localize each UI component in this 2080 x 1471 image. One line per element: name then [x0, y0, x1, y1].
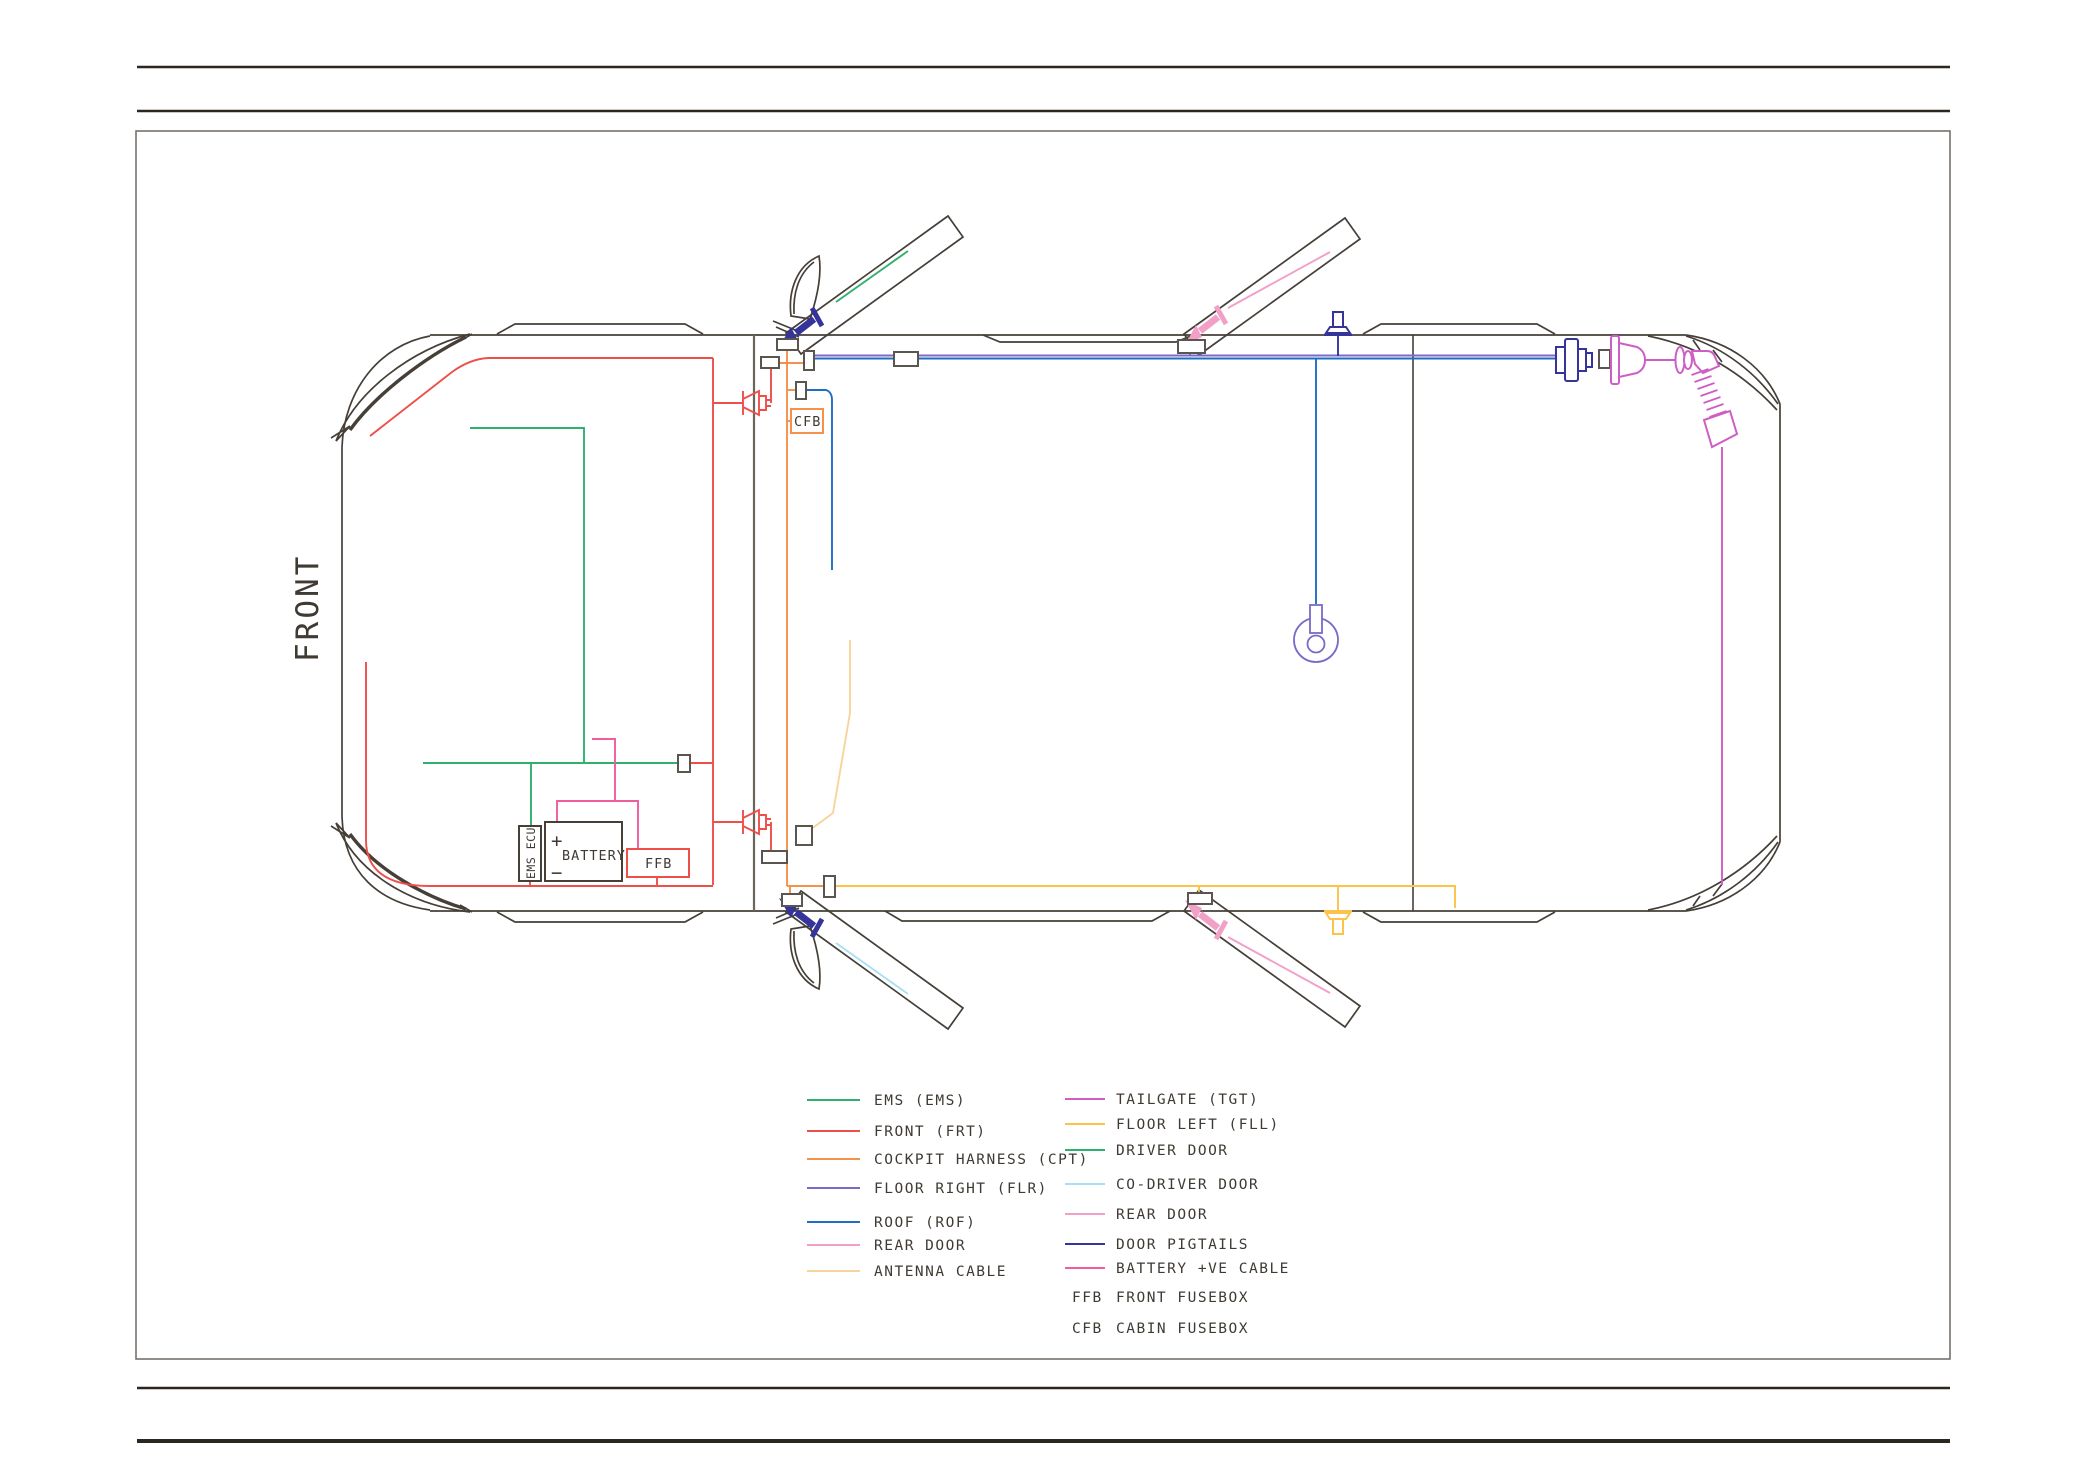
- legend-abbr-label: CABIN FUSEBOX: [1116, 1321, 1249, 1337]
- drawing-sheet: FRONT: [0, 0, 2080, 1471]
- front-left-wheel-arch: [497, 912, 703, 922]
- driver-door-panel: [786, 216, 963, 354]
- legend-label: FLOOR RIGHT (FLR): [874, 1181, 1048, 1197]
- dome-lamp-bulb: [1310, 605, 1322, 633]
- floor-sensor-mast: [1333, 919, 1343, 934]
- floor-left-harness: [835, 886, 1455, 912]
- sliding-door-rail-top: [983, 335, 1193, 342]
- battery-label: BATTERY: [562, 848, 626, 864]
- driver-door-harness-wire: [836, 251, 908, 302]
- legend-label: ROOF (ROF): [874, 1215, 976, 1231]
- legend-right-column: TAILGATE (TGT) FLOOR LEFT (FLL) DRIVER D…: [1065, 1092, 1290, 1277]
- door-pigtails: [779, 306, 1226, 939]
- battery-plus-sign: +: [551, 830, 562, 852]
- legend-left-column: EMS (EMS) FRONT (FRT) COCKPIT HARNESS (C…: [807, 1093, 1089, 1280]
- legend-label: FRONT (FRT): [874, 1124, 987, 1140]
- wheel-arches: [497, 324, 1555, 922]
- ffb-label: FFB: [645, 856, 672, 872]
- codriver-door-harness-wire: [836, 943, 908, 994]
- legend-abbr: FFB: [1072, 1290, 1103, 1306]
- connector: [761, 357, 779, 368]
- tailgate-boot-tip: [1704, 411, 1737, 447]
- antenna-base: [1326, 327, 1350, 333]
- rear-door-top-harness-wire: [1228, 252, 1330, 308]
- sliding-door-rail-bottom: [885, 911, 1170, 921]
- front-right-wheel-arch: [497, 324, 703, 334]
- connector: [1599, 350, 1610, 368]
- connector: [796, 826, 812, 845]
- legend-label: BATTERY +VE CABLE: [1116, 1261, 1290, 1277]
- tailgate-connector-cone: [1619, 343, 1645, 377]
- floor-sensor-mount: [1324, 911, 1352, 934]
- firewall-grommet-lower: [743, 810, 771, 834]
- dome-lamp: [1294, 605, 1338, 662]
- ems-ecu-box: EMS ECU: [519, 826, 541, 881]
- legend-abbreviations: FFB FRONT FUSEBOX CFB CABIN FUSEBOX: [1072, 1290, 1249, 1337]
- connector: [796, 382, 806, 399]
- ffb-box: FFB: [627, 849, 689, 877]
- antenna-mast: [1333, 312, 1343, 327]
- connector: [762, 851, 787, 863]
- cfb-label: CFB: [794, 414, 821, 430]
- tailgate-connector-plate: [1611, 336, 1619, 384]
- tailgate-corrugated-boot: [1692, 369, 1727, 417]
- legend-label: DRIVER DOOR: [1116, 1143, 1229, 1159]
- roof-harness: [806, 359, 1556, 605]
- tailgate-round-connector-inner: [1684, 351, 1692, 369]
- connector: [824, 876, 835, 897]
- legend: EMS (EMS) FRONT (FRT) COCKPIT HARNESS (C…: [807, 1092, 1290, 1337]
- rear-right-wheel-arch: [1363, 324, 1555, 334]
- roof-rear-connector: [1556, 347, 1565, 373]
- legend-label: FLOOR LEFT (FLL): [1116, 1117, 1280, 1133]
- battery-minus-sign: −: [551, 862, 562, 884]
- drawing-frame: [136, 131, 1950, 1359]
- legend-label: REAR DOOR: [1116, 1207, 1208, 1223]
- legend-label: COCKPIT HARNESS (CPT): [874, 1152, 1089, 1168]
- roof-rear-connector-nub: [1586, 353, 1592, 367]
- connector: [804, 351, 814, 370]
- legend-label: CO-DRIVER DOOR: [1116, 1177, 1259, 1193]
- tail-lamp-bottom: [1648, 836, 1780, 911]
- legend-label: DOOR PIGTAILS: [1116, 1237, 1249, 1253]
- front-harness: [366, 358, 771, 886]
- connector: [1188, 893, 1212, 904]
- connector: [1178, 340, 1205, 353]
- connector: [782, 894, 802, 906]
- sheet-border: [136, 67, 1950, 1441]
- antenna-cable: [806, 640, 850, 833]
- legend-label: ANTENNA CABLE: [874, 1264, 1007, 1280]
- battery-box: + − BATTERY: [545, 822, 626, 884]
- roof-antenna-mount: [1324, 312, 1352, 356]
- cfb-box: CFB: [791, 409, 823, 433]
- driver-door-open: [773, 216, 963, 354]
- legend-abbr-label: FRONT FUSEBOX: [1116, 1290, 1249, 1306]
- firewall-grommet-upper: [743, 391, 771, 415]
- legend-abbr: CFB: [1072, 1321, 1103, 1337]
- legend-label: EMS (EMS): [874, 1093, 966, 1109]
- roof-rear-connector-body: [1565, 339, 1578, 381]
- connector: [777, 339, 798, 350]
- headlamp-bottom: [331, 823, 472, 912]
- ems-harness: [423, 428, 678, 826]
- ems-ecu-label: EMS ECU: [524, 827, 538, 879]
- connector: [894, 352, 918, 366]
- front-direction-label: FRONT: [290, 554, 326, 662]
- roof-rear-connector-step: [1578, 349, 1586, 371]
- legend-label: REAR DOOR: [874, 1238, 966, 1254]
- tailgate-connector-cluster: [1556, 336, 1737, 885]
- harness-routing-diagram: FRONT: [0, 0, 2080, 1471]
- rear-door-bottom-harness-wire: [1228, 937, 1330, 993]
- connector: [678, 755, 690, 772]
- legend-label: TAILGATE (TGT): [1116, 1092, 1259, 1108]
- front-bottom-corner: [342, 817, 430, 910]
- rear-left-wheel-arch: [1363, 912, 1555, 922]
- headlamp-top: [331, 334, 472, 441]
